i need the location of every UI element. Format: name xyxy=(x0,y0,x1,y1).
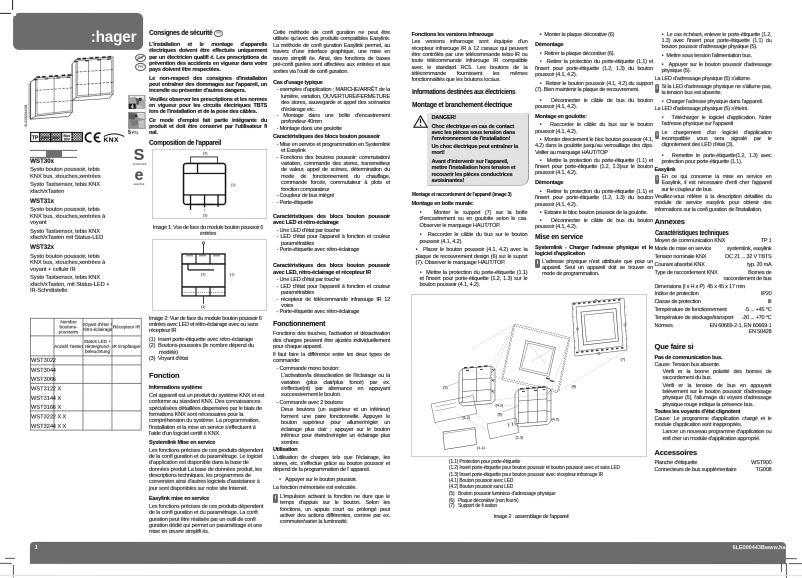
svg-text:IR Empfänger: IR Empfänger xyxy=(112,344,141,349)
svg-text:6: 6 xyxy=(52,377,55,383)
svg-text:beleuchtung: beleuchtung xyxy=(84,349,109,354)
svg-text:SU: SU xyxy=(137,105,142,109)
svg-text:(6): (6) xyxy=(571,383,576,388)
svg-text:(4.1): (4.1) xyxy=(495,402,503,407)
svg-text:X: X xyxy=(57,396,61,402)
svg-text:rétro-éclairage: rétro-éclairage xyxy=(82,327,112,332)
svg-text:WST324: WST324 xyxy=(30,424,52,430)
svg-text:4: 4 xyxy=(52,368,55,374)
svg-text:X: X xyxy=(62,424,66,430)
svg-text:WST312: WST312 xyxy=(30,386,52,392)
svg-text:(3): (3) xyxy=(203,213,207,217)
svg-text:4: 4 xyxy=(52,396,55,402)
svg-text:(5): (5) xyxy=(497,411,502,416)
svg-text:WST322: WST322 xyxy=(30,414,52,420)
svg-text:WST304: WST304 xyxy=(30,368,52,374)
svg-text:WST316: WST316 xyxy=(30,405,52,411)
svg-text:2: 2 xyxy=(52,414,55,420)
svg-text:X: X xyxy=(57,424,61,430)
svg-text:X: X xyxy=(62,414,66,420)
svg-text:230V: 230V xyxy=(52,136,61,140)
svg-text:2: 2 xyxy=(52,358,55,364)
svg-text:Anzahl Tasten: Anzahl Tasten xyxy=(54,344,83,349)
svg-text:(1): (1) xyxy=(231,183,235,187)
svg-text:WST314: WST314 xyxy=(30,396,52,402)
svg-text:(3): (3) xyxy=(442,384,447,389)
svg-text:(2): (2) xyxy=(201,273,205,277)
svg-text:230V: 230V xyxy=(41,136,50,140)
svg-text:X: X xyxy=(57,405,61,411)
svg-text:4: 4 xyxy=(52,424,55,430)
svg-text:WST306: WST306 xyxy=(30,377,52,383)
svg-text:WST302: WST302 xyxy=(30,358,52,364)
svg-text:(4.2): (4.2) xyxy=(551,416,559,421)
svg-text:KNX: KNX xyxy=(104,137,120,143)
svg-text:(2): (2) xyxy=(203,151,207,155)
svg-text:2: 2 xyxy=(52,386,55,392)
svg-text:X: X xyxy=(57,386,61,392)
svg-text:(1.2): (1.2) xyxy=(462,415,470,420)
svg-text:(1): (1) xyxy=(230,273,234,277)
svg-text:(1.1): (1.1) xyxy=(476,445,484,450)
svg-text:poussoirs: poussoirs xyxy=(58,329,78,334)
svg-text:(7): (7) xyxy=(620,356,625,361)
svg-text:(3): (3) xyxy=(200,305,204,309)
svg-text:6: 6 xyxy=(52,405,55,411)
svg-text:X: X xyxy=(57,414,61,420)
svg-text:(1.3): (1.3) xyxy=(515,434,523,439)
svg-text:Récepteur IR: Récepteur IR xyxy=(112,324,140,329)
svg-text:30V: 30V xyxy=(64,137,71,141)
svg-text:TP: TP xyxy=(32,135,39,141)
